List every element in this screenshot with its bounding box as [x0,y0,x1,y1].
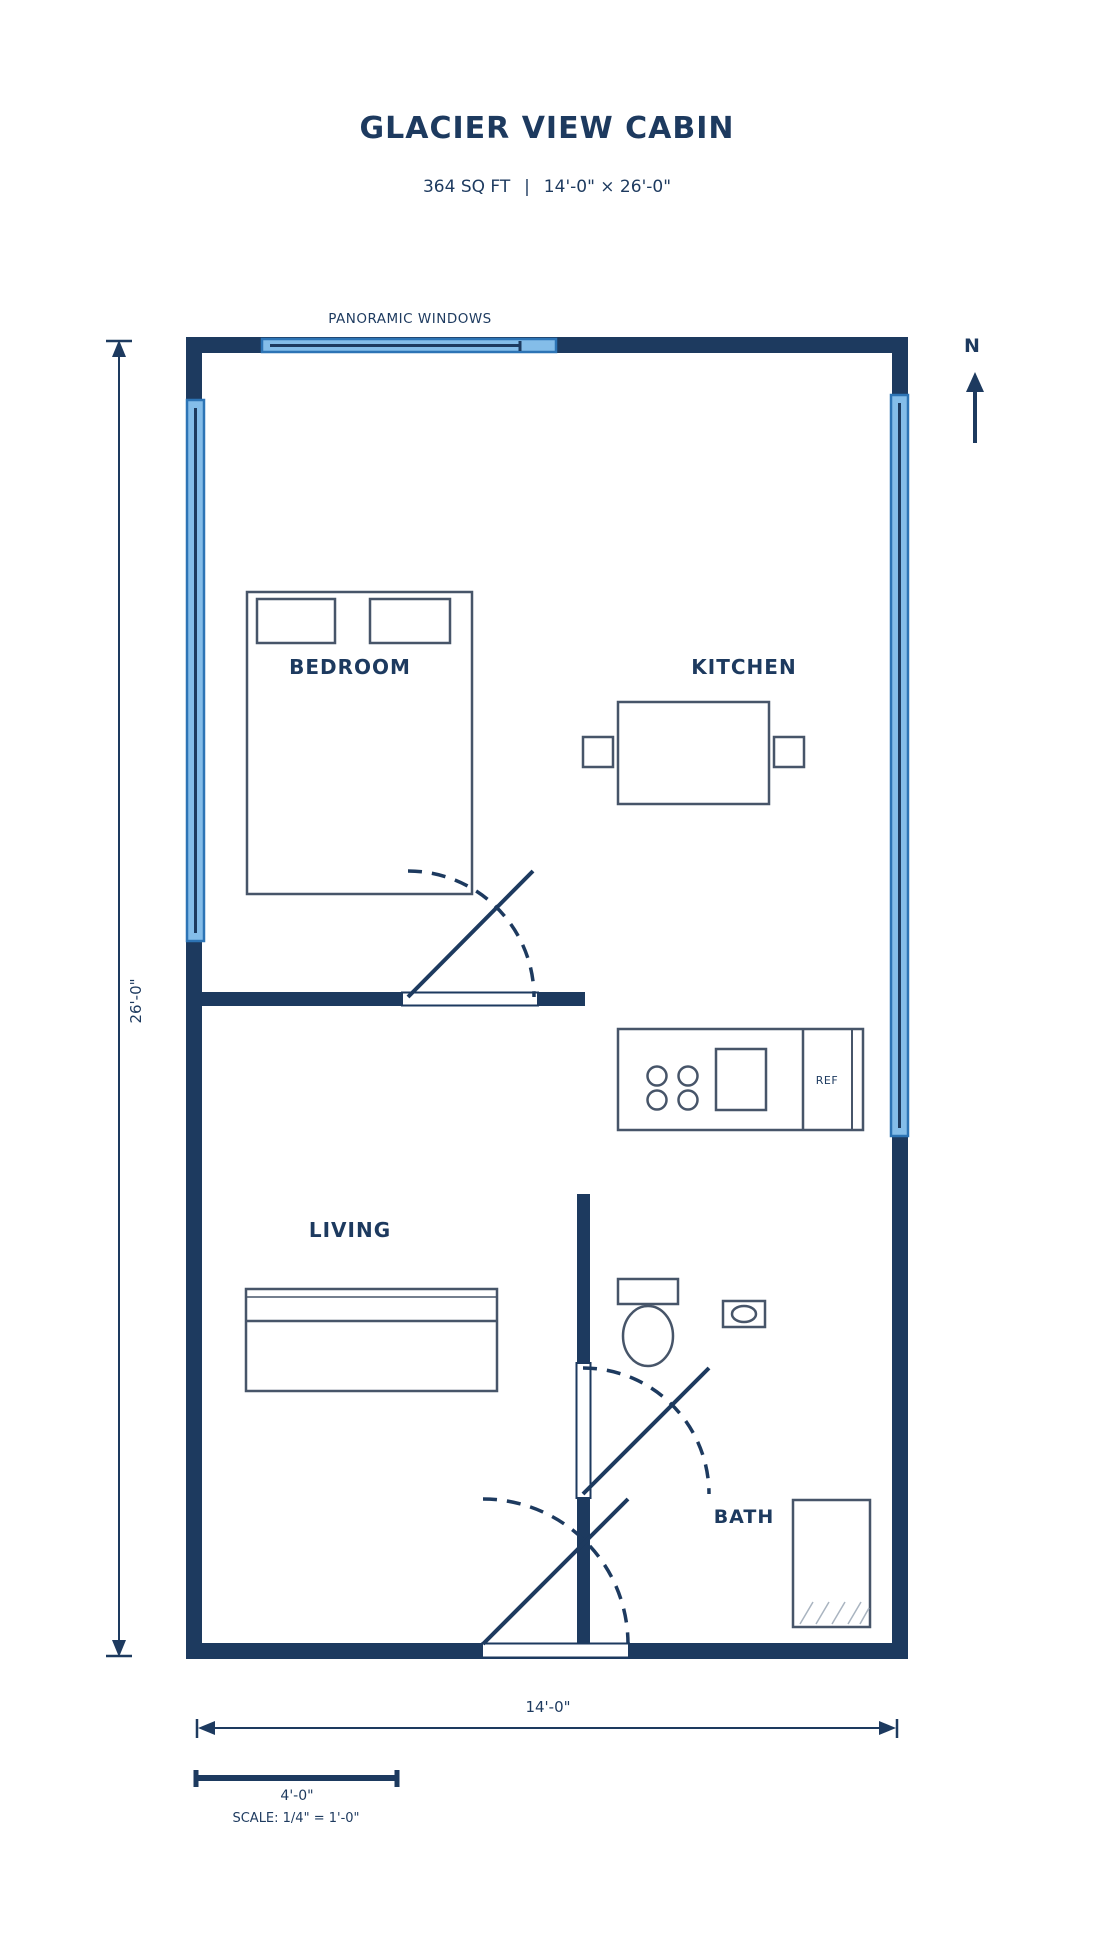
dim-width-label: 14'-0" [525,1698,570,1716]
room-label-bedroom: BEDROOM [289,655,411,679]
shower [793,1500,870,1627]
bath-door-opening [577,1363,591,1498]
dim-height: 26'-0" [106,340,145,1657]
kitchen-chair-right [774,737,804,767]
room-label-kitchen: KITCHEN [691,655,796,679]
bed-pillow-left [257,599,335,643]
kitchen-counter: REF [618,1029,863,1130]
floor-plan-page: GLACIER VIEW CABIN 364 SQ FT | 14'-0" × … [0,0,1095,1949]
north-arrowhead [966,372,984,392]
scale-note: SCALE: 1/4" = 1'-0" [232,1811,359,1826]
dim-width: 14'-0" [197,1698,897,1738]
window-right [891,395,908,1136]
window-top [262,339,556,352]
scale-length-label: 4'-0" [280,1788,313,1804]
panoramic-windows-label: PANORAMIC WINDOWS [328,311,492,327]
bath-door [577,1363,710,1498]
kitchen-chair-left [583,737,613,767]
kitchen-sink [716,1049,766,1110]
toilet [618,1279,678,1366]
bath-sink [723,1301,765,1327]
kitchen-table [618,702,769,804]
sofa [246,1289,497,1391]
north-arrow: N [964,335,984,443]
window-left [187,400,204,941]
bed [247,592,472,894]
dim-height-label: 26'-0" [127,978,145,1023]
entry-door-opening [482,1644,629,1658]
page-subtitle: 364 SQ FT | 14'-0" × 26'-0" [423,177,671,197]
room-label-bath: BATH [714,1506,775,1528]
north-label: N [964,335,980,357]
bedroom-door-opening [402,993,538,1006]
floor-plan-drawing: GLACIER VIEW CABIN 364 SQ FT | 14'-0" × … [0,0,1095,1949]
entry-door-leaf [483,1499,628,1644]
scale-bar: 4'-0" SCALE: 1/4" = 1'-0" [196,1770,397,1826]
stove-burner [679,1091,698,1110]
interior-wall-bath-lower [577,1498,590,1644]
entry-door [482,1499,629,1658]
room-label-living: LIVING [309,1218,391,1242]
stove-burner [648,1067,667,1086]
bed-pillow-right [370,599,450,643]
page-title: GLACIER VIEW CABIN [360,111,735,146]
interior-wall-bath-upper [577,1194,590,1363]
stove-burner [648,1091,667,1110]
stove-burner [679,1067,698,1086]
refrigerator-label: REF [816,1074,838,1087]
